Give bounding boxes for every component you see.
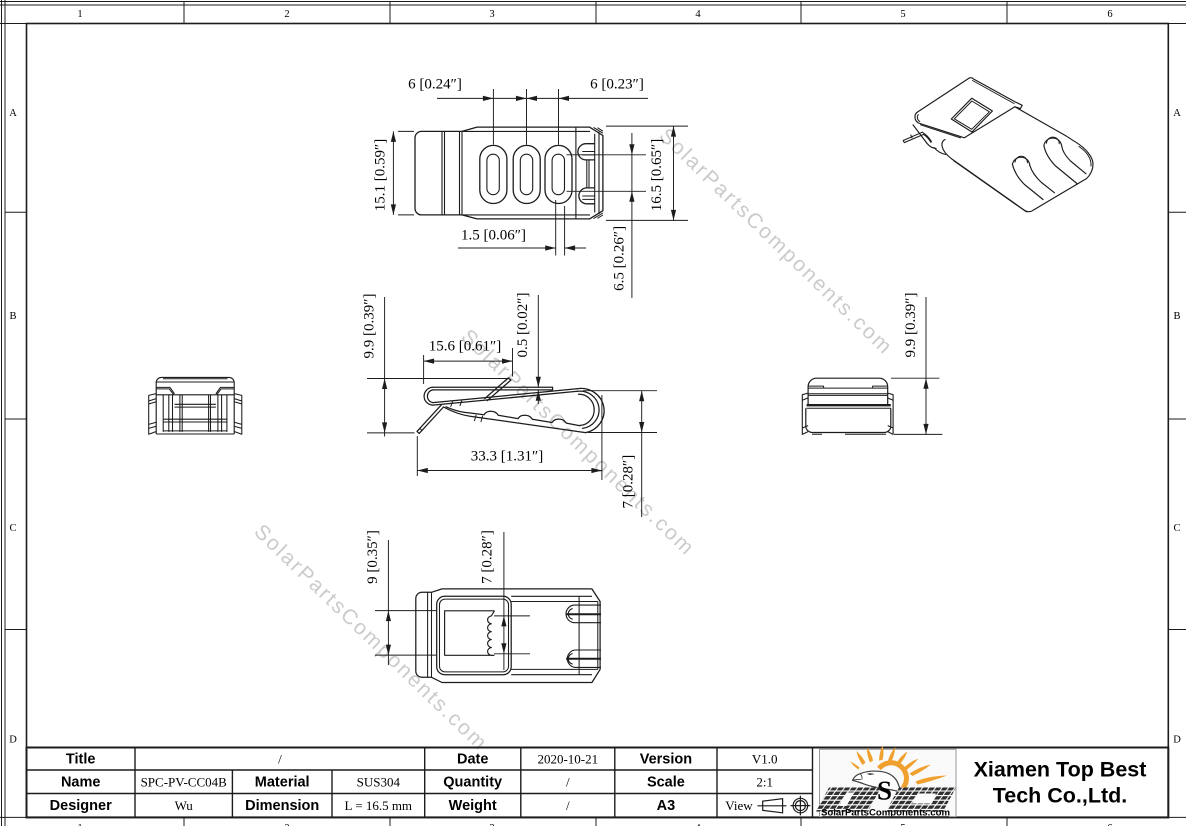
svg-text:1.5 [0.06″]: 1.5 [0.06″] xyxy=(461,228,526,244)
svg-text:V1.0: V1.0 xyxy=(752,752,778,767)
svg-text:Scale: Scale xyxy=(647,775,685,791)
svg-text:A3: A3 xyxy=(657,798,676,814)
svg-text:Name: Name xyxy=(61,775,101,791)
svg-text:33.3 [1.31″]: 33.3 [1.31″] xyxy=(471,449,544,465)
svg-text:6.5 [0.26″]: 6.5 [0.26″] xyxy=(611,226,627,291)
svg-text:A: A xyxy=(1173,108,1181,119)
svg-text:Tech Co.,Ltd.: Tech Co.,Ltd. xyxy=(993,784,1128,808)
svg-text:Quantity: Quantity xyxy=(443,775,502,791)
svg-text:/: / xyxy=(566,775,570,790)
svg-text:Wu: Wu xyxy=(175,798,194,813)
svg-text:Designer: Designer xyxy=(50,798,112,814)
svg-text:B: B xyxy=(9,311,16,322)
svg-text:6 [0.23″]: 6 [0.23″] xyxy=(590,77,644,93)
svg-text:Date: Date xyxy=(457,752,488,768)
svg-text:15.6 [0.61″]: 15.6 [0.61″] xyxy=(429,339,502,355)
svg-text:2:1: 2:1 xyxy=(756,775,773,790)
svg-text:L = 16.5 mm: L = 16.5 mm xyxy=(345,798,413,813)
svg-text:B: B xyxy=(1173,311,1180,322)
svg-text:Version: Version xyxy=(640,752,692,768)
svg-text:9.9 [0.39″]: 9.9 [0.39″] xyxy=(903,293,919,358)
svg-text:Dimension: Dimension xyxy=(245,798,319,814)
svg-text:SolarPartsComponents.com: SolarPartsComponents.com xyxy=(457,325,700,561)
svg-text:SolarPartsComponents.com: SolarPartsComponents.com xyxy=(655,124,898,360)
svg-text:A: A xyxy=(9,108,17,119)
svg-text:6 [0.24″]: 6 [0.24″] xyxy=(408,77,462,93)
svg-text:3: 3 xyxy=(489,9,494,20)
svg-text:C: C xyxy=(1173,523,1180,534)
svg-text:7 [0.28″]: 7 [0.28″] xyxy=(480,530,496,584)
svg-text:5: 5 xyxy=(900,9,905,20)
svg-text:6: 6 xyxy=(1107,9,1112,20)
svg-text:Material: Material xyxy=(255,775,310,791)
svg-text:4: 4 xyxy=(695,9,701,20)
svg-text:9 [0.35″]: 9 [0.35″] xyxy=(365,530,381,584)
svg-text:SPC-PV-CC04B: SPC-PV-CC04B xyxy=(141,775,228,790)
svg-text:2: 2 xyxy=(284,9,289,20)
svg-text:D: D xyxy=(9,735,17,746)
svg-text:Xiamen Top Best: Xiamen Top Best xyxy=(974,758,1147,782)
svg-text:9.9 [0.39″]: 9.9 [0.39″] xyxy=(362,294,378,359)
svg-text:15.1 [0.59″]: 15.1 [0.59″] xyxy=(373,139,389,212)
svg-text:Title: Title xyxy=(66,752,96,768)
svg-text:7 [0.28″]: 7 [0.28″] xyxy=(620,455,636,509)
svg-text:D: D xyxy=(1173,735,1181,746)
svg-text:/: / xyxy=(278,752,282,767)
svg-text:0.5 [0.02″]: 0.5 [0.02″] xyxy=(515,293,531,358)
svg-text:16.5 [0.65″]: 16.5 [0.65″] xyxy=(649,139,665,212)
svg-text:2020-10-21: 2020-10-21 xyxy=(537,752,598,767)
svg-text:Weight: Weight xyxy=(449,798,497,814)
svg-text:View: View xyxy=(725,798,753,813)
svg-text:C: C xyxy=(9,523,16,534)
svg-text:1: 1 xyxy=(77,9,82,20)
svg-text:SUS304: SUS304 xyxy=(357,775,401,790)
svg-text:/: / xyxy=(566,798,570,813)
